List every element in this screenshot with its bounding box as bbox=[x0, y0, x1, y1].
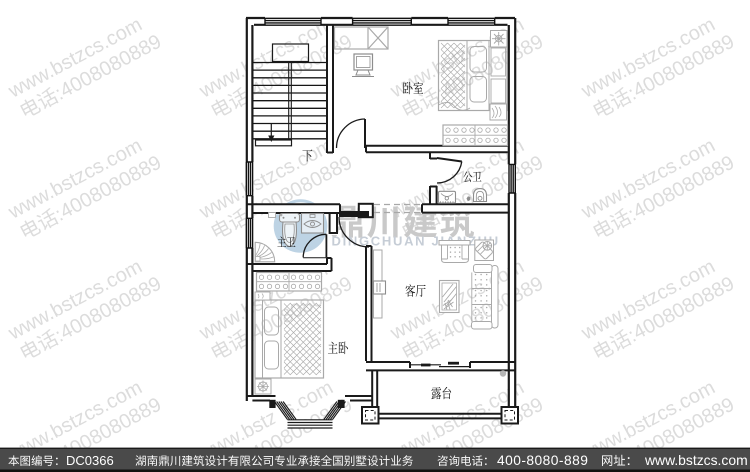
svg-text:400-8080-889: 400-8080-889 bbox=[497, 453, 588, 468]
svg-text:www.bstzcs.com: www.bstzcs.com bbox=[644, 452, 748, 468]
svg-text:DC0366: DC0366 bbox=[66, 453, 114, 468]
